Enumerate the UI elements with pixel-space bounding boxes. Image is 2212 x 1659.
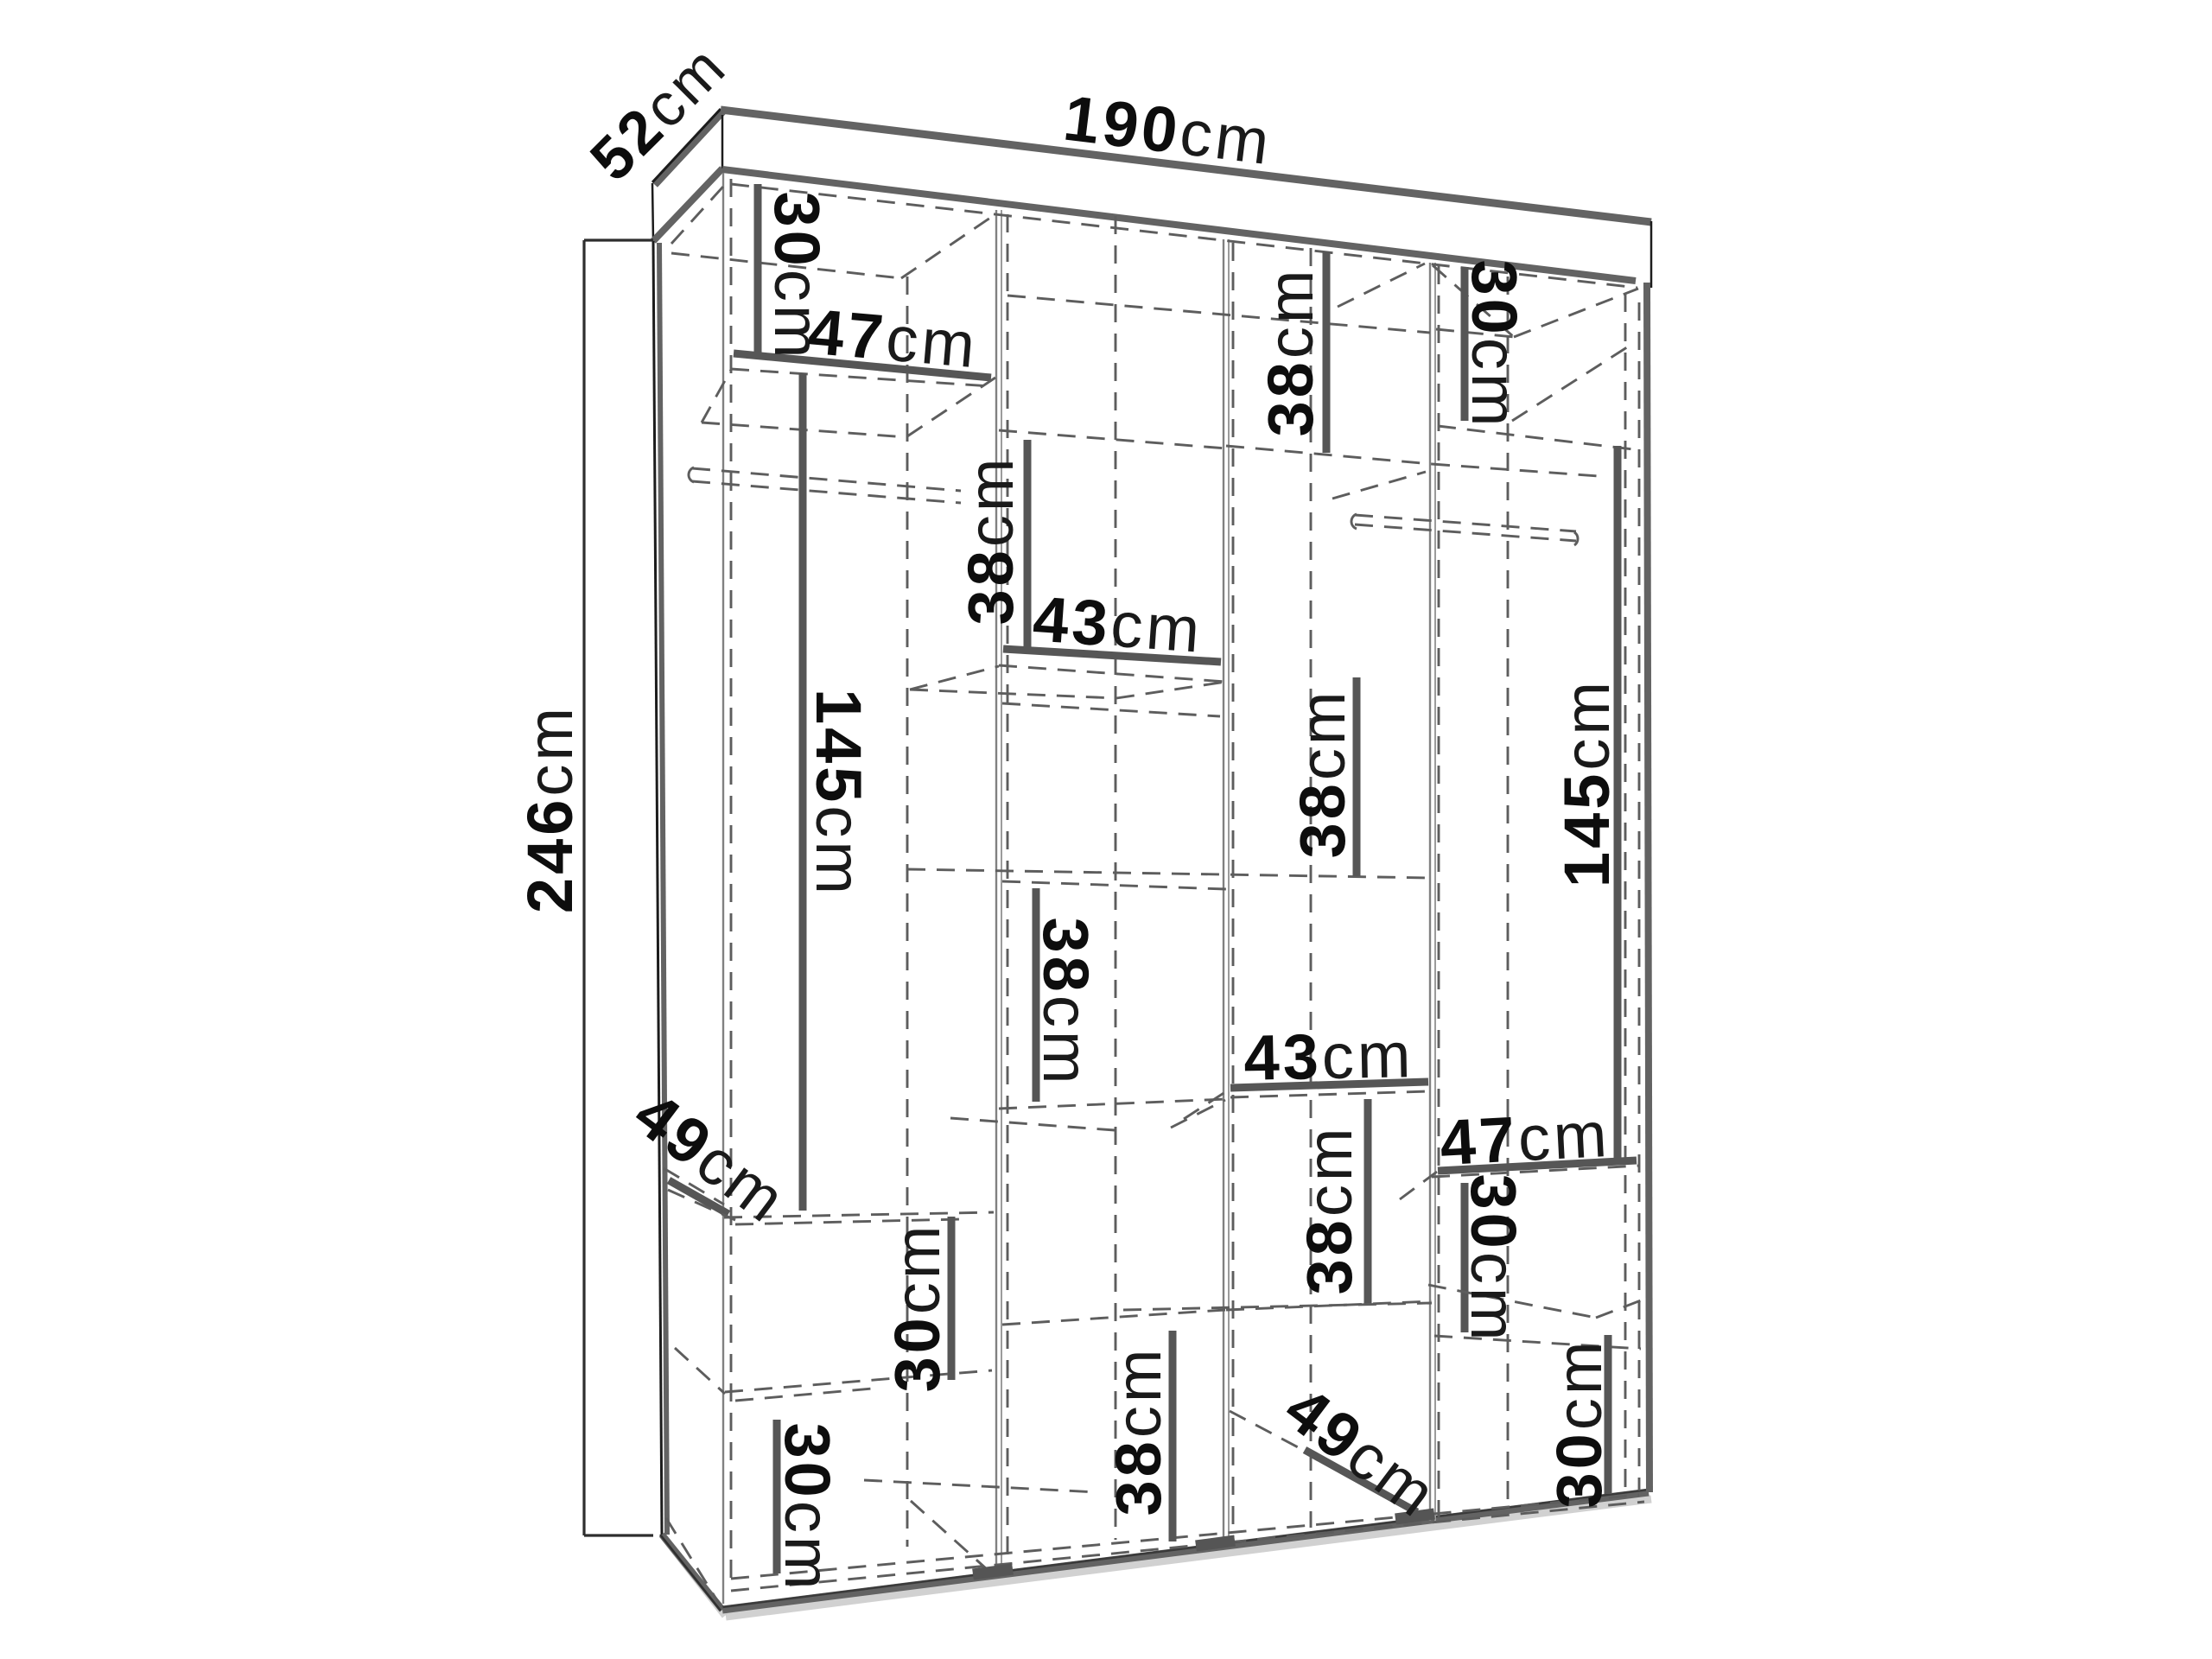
svg-text:30cm: 30cm [881,1223,953,1393]
svg-text:30cm: 30cm [772,1423,844,1593]
svg-text:38cm: 38cm [1255,267,1326,437]
svg-text:43cm: 43cm [1243,1019,1414,1093]
svg-text:43cm: 43cm [1031,582,1205,666]
svg-text:38cm: 38cm [1031,918,1103,1088]
svg-text:145cm: 145cm [804,689,875,898]
svg-text:30cm: 30cm [1459,260,1531,430]
svg-text:38cm: 38cm [1287,689,1358,859]
svg-text:38cm: 38cm [1294,1125,1365,1295]
svg-text:47cm: 47cm [1438,1097,1611,1178]
svg-text:30cm: 30cm [1459,1174,1530,1344]
svg-text:30cm: 30cm [1543,1338,1615,1509]
svg-text:47cm: 47cm [805,295,981,381]
svg-text:246cm: 246cm [514,704,586,913]
svg-text:38cm: 38cm [955,455,1027,626]
svg-text:145cm: 145cm [1551,678,1623,887]
svg-text:38cm: 38cm [1103,1346,1174,1516]
